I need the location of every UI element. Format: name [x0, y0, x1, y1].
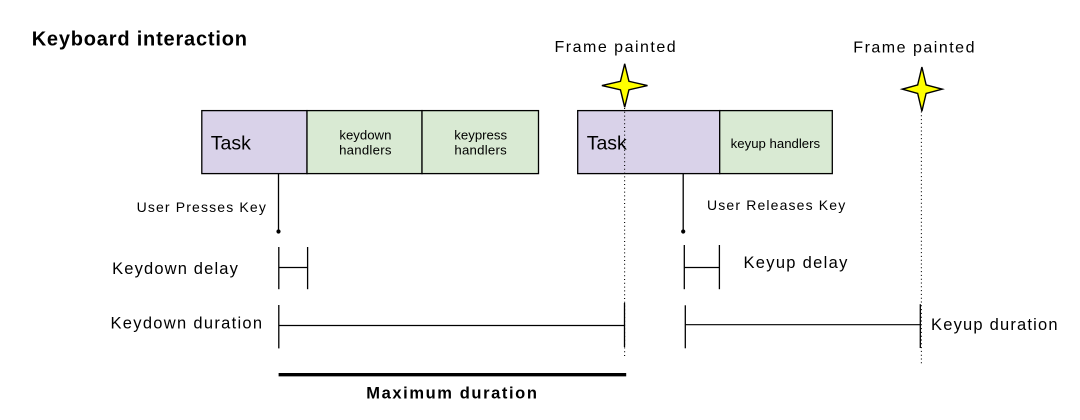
svg-text:keyup handlers: keyup handlers	[731, 136, 821, 151]
svg-text:keydown: keydown	[339, 127, 391, 142]
svg-text:handlers: handlers	[454, 143, 507, 158]
svg-text:Frame painted: Frame painted	[555, 39, 678, 56]
svg-text:Keydown duration: Keydown duration	[111, 314, 264, 332]
svg-text:keypress: keypress	[454, 127, 507, 142]
svg-text:User Releases Key: User Releases Key	[707, 197, 846, 213]
svg-text:Keyup delay: Keyup delay	[744, 254, 849, 272]
svg-text:Keyboard interaction: Keyboard interaction	[32, 29, 248, 51]
svg-text:Task: Task	[211, 133, 251, 155]
svg-text:Maximum duration: Maximum duration	[366, 385, 538, 403]
svg-text:User Presses Key: User Presses Key	[137, 199, 267, 215]
svg-text:handlers: handlers	[339, 143, 392, 158]
svg-text:Keyup duration: Keyup duration	[931, 316, 1059, 334]
svg-text:Frame painted: Frame painted	[853, 39, 976, 56]
svg-text:Keydown delay: Keydown delay	[112, 260, 239, 278]
svg-text:Task: Task	[587, 133, 627, 155]
